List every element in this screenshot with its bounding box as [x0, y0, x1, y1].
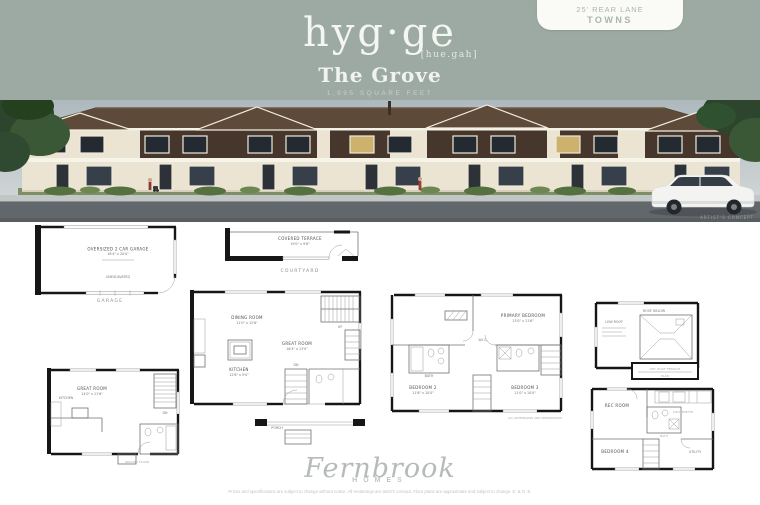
plan-note: UNEXCAVATED [106, 275, 130, 279]
plan-name: The Grove [0, 63, 760, 87]
plan-caption: GARAGE [97, 298, 123, 304]
builder-logo: Fernbrook HOMES [0, 453, 760, 484]
plan-note: ALL DIMENSIONS ARE APPROXIMATE [508, 416, 563, 420]
room-label: GREAT ROOM [77, 386, 107, 391]
room-label: BEDROOM 3 [511, 385, 539, 390]
roof-box-line2: PLAN [661, 374, 669, 378]
artist-concept-watermark: ARTIST'S CONCEPT [700, 215, 754, 220]
stair-label: UP [338, 325, 342, 329]
room-dims: 13'0" x 11'6" [512, 319, 534, 323]
pedestrian [418, 177, 422, 190]
room-label: REC ROOM [605, 403, 630, 408]
main-roof [18, 108, 742, 130]
building-rendering: ARTIST'S CONCEPT [0, 100, 760, 222]
sidewalk [0, 195, 760, 202]
room-dims: 12'6" x 9'0" [229, 373, 249, 377]
stair-label: DN [293, 363, 299, 367]
room-label: GREAT ROOM [282, 341, 312, 346]
floor-plan-roof: LOW ROOF ROOF BELOW OPT. ROOF TERRACE PL… [588, 293, 710, 385]
room-dims: 11'0" x 10'0" [514, 391, 536, 395]
badge-line1: 25' REAR LANE [576, 5, 643, 14]
room-label: KITCHEN [229, 367, 248, 372]
stair-label: DN [162, 411, 168, 415]
sqft-label: 1,995 SQUARE FEET [0, 90, 760, 97]
room-dims: 16'4" x 13'0" [286, 347, 308, 351]
floor-plan-courtyard: COVERED TERRACE 19'0" x 9'6" COURTYARD [220, 224, 368, 276]
roof-label: ROOF BELOW [643, 309, 666, 313]
room-label: BATH [425, 374, 434, 378]
room-dims: 19'0" x 9'6" [290, 242, 310, 246]
floor-plan-second: PRIMARY BEDROOM 13'0" x 11'6" BEDROOM 2 … [385, 283, 570, 425]
room-label: BEDROOM 2 [409, 385, 437, 390]
room-dims: 11'6" x 10'0" [412, 391, 434, 395]
corner-badge: 25' REAR LANE TOWNS [537, 0, 683, 30]
brochure-page: hyg·ge [hue.gah] The Grove 1,995 SQUARE … [0, 0, 760, 505]
townhouse-facade [18, 101, 756, 192]
floor-plan-main: DINING ROOM 11'0" x 12'6" GREAT ROOM 16'… [185, 283, 370, 465]
builder-logo-sub: HOMES [0, 477, 760, 484]
badge-line2: TOWNS [587, 15, 633, 25]
room-label: PRIMARY BEDROOM [501, 313, 545, 318]
room-label: COVERED TERRACE [278, 236, 322, 241]
room-label: BATH [660, 434, 668, 438]
plan-caption: COURTYARD [281, 268, 320, 274]
room-label: OVERSIZED 2 CAR GARAGE [87, 247, 148, 252]
porch-label: PORCH [271, 426, 283, 430]
room-dims: 11'0" x 12'6" [236, 321, 258, 325]
room-dims: 14'0" x 11'6" [81, 392, 103, 396]
room-label: KITCHENETTE [673, 410, 694, 414]
floor-plan-garage: OVERSIZED 2 CAR GARAGE 18'4" x 20'0" UNE… [30, 222, 180, 322]
room-label: W.I.C. [478, 338, 487, 342]
roof-box-line1: OPT. ROOF TERRACE [650, 367, 681, 371]
room-label: KITCHEN [59, 396, 74, 400]
room-label: DINING ROOM [231, 315, 263, 320]
room-dims: 18'4" x 20'0" [107, 252, 129, 256]
roof-label: LOW ROOF [605, 320, 623, 324]
legal-disclaimer: Prices and specifications are subject to… [220, 489, 540, 494]
header-band: hyg·ge [hue.gah] The Grove 1,995 SQUARE … [0, 0, 760, 100]
